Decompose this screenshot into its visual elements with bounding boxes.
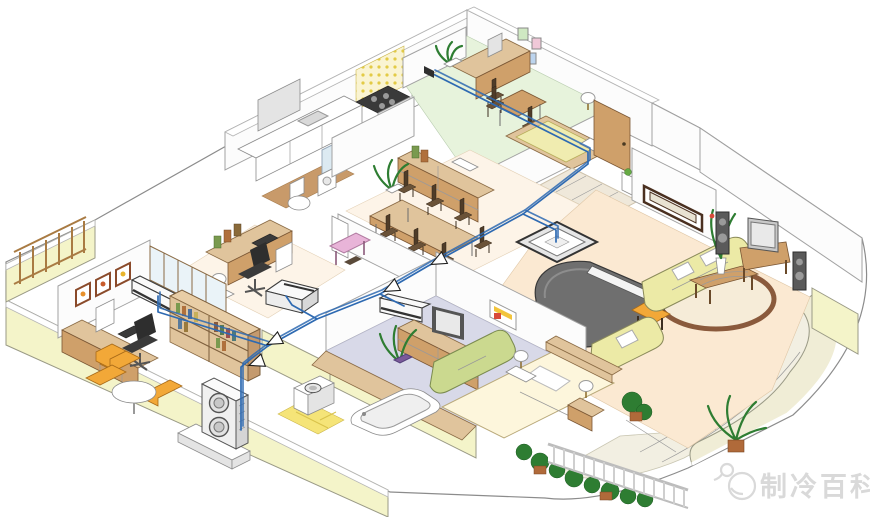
speaker-left xyxy=(716,212,729,254)
chat-bubble-mascot-icon xyxy=(714,464,755,499)
watermark-text: 制冷百科 xyxy=(760,472,870,502)
flower xyxy=(710,214,715,219)
toilet-bowl xyxy=(288,196,310,210)
isometric-house-diagram: 制冷百科 xyxy=(0,0,870,517)
speaker-right xyxy=(793,252,806,290)
shelf-plant xyxy=(625,169,632,176)
bath-faucet xyxy=(362,412,366,416)
illustration-canvas: 制冷百科 xyxy=(0,0,870,517)
vase xyxy=(716,258,726,274)
office-round-table xyxy=(112,381,156,403)
watermark: 制冷百科 xyxy=(714,464,870,502)
